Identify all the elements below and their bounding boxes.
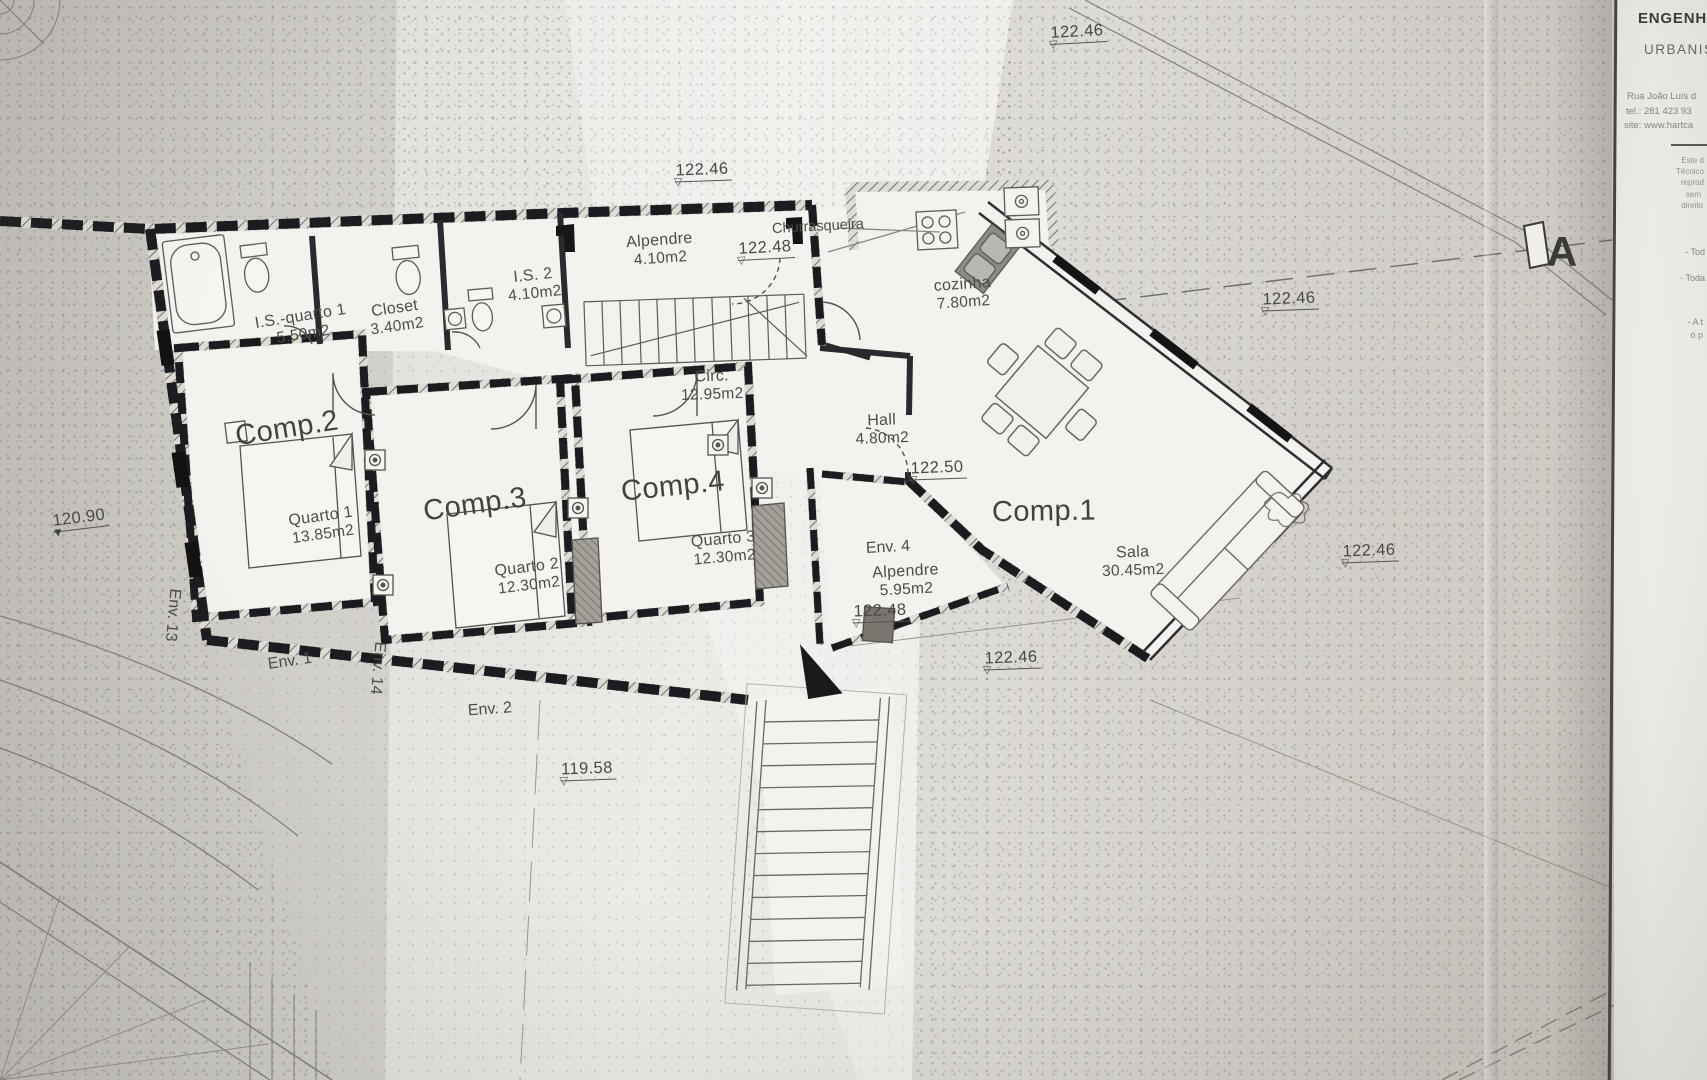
elevation-marker-top: 122.46 [1049,21,1107,45]
room-label-comp1: Comp.1 [992,494,1097,529]
sheet-edge-shadow [1552,0,1612,1080]
title-block-fineprint-4: sem [1686,190,1701,201]
title-block-fineprint-1: Este d [1681,156,1704,167]
room-label-alpendre-north: Alpendre 4.10m2 [626,230,695,271]
stove-icon [916,210,958,250]
title-block-fineprint-5: direito [1681,201,1703,212]
title-block-heading: ENGENHA [1638,10,1707,27]
elevation-triangle-icon [1049,38,1058,51]
title-block-note-3: - A t [1687,316,1703,328]
elevation-triangle-icon [852,616,861,629]
elevation-marker-hall: 122.50 [909,458,967,481]
paper-crease [1484,0,1498,1080]
elevation-marker-terrace-east: 122.48 [852,601,910,624]
bathtub-icon [162,234,235,333]
basin-icon [444,308,466,330]
title-block-note-1: - Tod [1685,246,1705,258]
elevation-triangle-icon [1261,304,1270,317]
elevation-triangle-icon [674,175,683,188]
elevation-triangle-icon [909,473,918,486]
title-block-fineprint-2: Técnico [1676,167,1704,178]
label-env4: Env. 4 [865,538,910,559]
elevation-triangle-icon [1341,556,1350,569]
room-label-quarto3: Quarto 3 12.30m2 [690,528,758,570]
section-cut-symbol [1524,222,1549,268]
elevation-marker-boundary-right: 122.46 [1261,289,1319,312]
elevation-triangle-icon [51,525,65,540]
elevation-marker-south: 119.58 [560,759,616,782]
floor-plan-drawing [0,0,1707,1080]
room-label-sala: Sala 30.45m2 [1101,543,1165,581]
stair-direction-arrow [796,644,846,701]
elevation-marker-right-mid: 122.46 [1341,541,1399,564]
title-block: ENGENHA URBANIS Rua João Luís d tel.: 28… [1614,0,1707,1080]
elevation-marker-stairs: 122.46 [983,648,1041,671]
elevation-marker-porch: 122.48 [737,237,795,261]
label-env2: Env. 2 [467,699,512,720]
room-label-circ: Circ. 12.95m2 [680,367,744,405]
title-block-rule [1671,144,1707,146]
basin-icon [542,304,566,328]
room-label-alpendre-east: Alpendre 5.95m2 [872,561,940,601]
elevation-triangle-icon [983,663,992,676]
room-label-closet: Closet 3.40m2 [367,296,425,339]
title-block-website: site: www.hartca [1624,119,1693,133]
room-label-hall: Hall 4.80m2 [855,411,910,449]
title-block-phone: tel.: 281 423 93 [1626,105,1692,119]
floor-plan-sheet: Comp.2 Comp.3 Comp.4 Comp.1 Quarto 1 13.… [0,0,1707,1080]
elevation-marker-upper-terrace: 122.46 [674,160,732,183]
elevation-triangle-icon [737,254,746,267]
title-block-note-2: - Toda [1680,272,1705,284]
room-label-is2: I.S. 2 4.10m2 [506,264,563,306]
title-block-address: Rua João Luís d [1627,90,1696,104]
elevation-triangle-icon [559,774,568,787]
title-block-fineprint-3: reprod [1681,178,1704,189]
room-label-cozinha: cozinha 7.80m2 [933,274,993,314]
title-block-note-4: o p [1690,329,1703,341]
title-block-subheading: URBANIS [1644,42,1707,57]
